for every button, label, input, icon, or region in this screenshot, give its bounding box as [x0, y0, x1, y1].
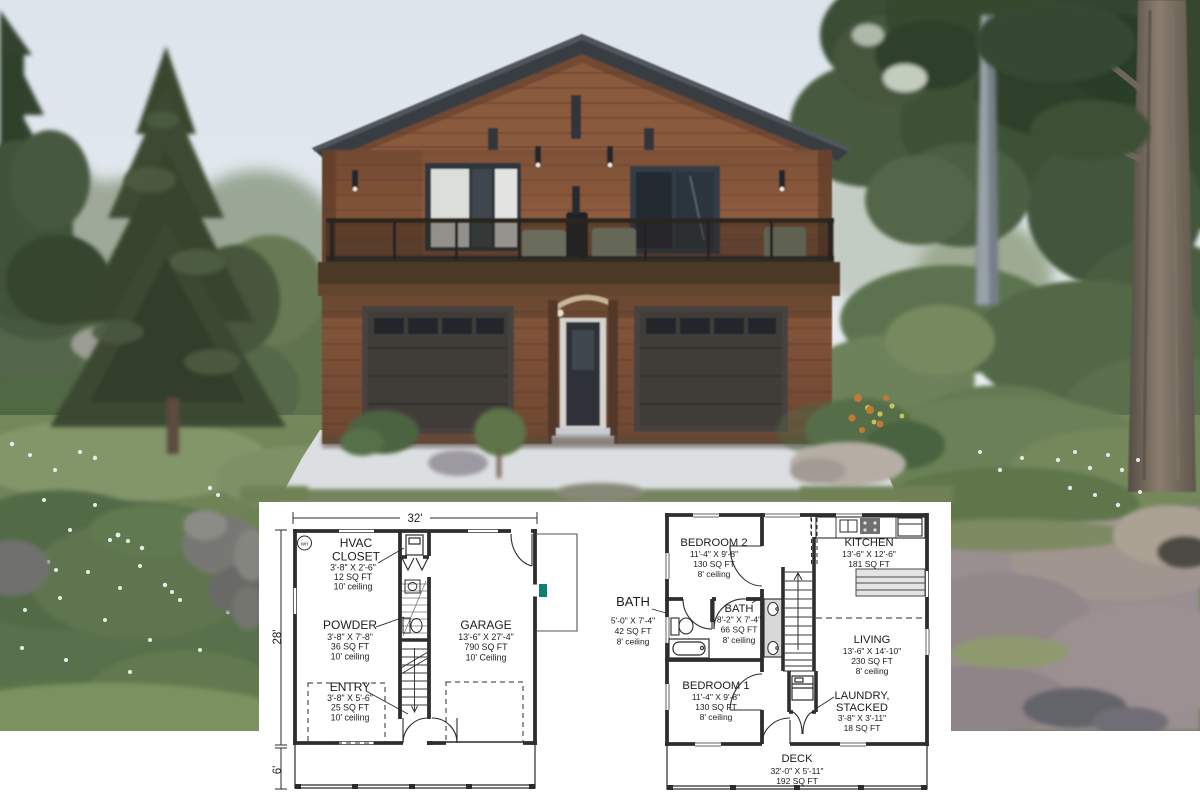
svg-text:KITCHEN: KITCHEN: [844, 537, 893, 549]
svg-text:790 SQ FT: 790 SQ FT: [464, 642, 508, 652]
svg-text:130 SQ FT: 130 SQ FT: [693, 559, 735, 569]
svg-text:11'-4" X 9'-8": 11'-4" X 9'-8": [690, 549, 738, 559]
svg-text:10' ceiling: 10' ceiling: [331, 652, 370, 662]
svg-text:8' ceiling: 8' ceiling: [723, 635, 756, 645]
svg-text:12 SQ FT: 12 SQ FT: [334, 572, 373, 582]
svg-text:13'-6" X 14'-10": 13'-6" X 14'-10": [843, 646, 901, 656]
svg-text:HVAC: HVAC: [340, 536, 373, 550]
svg-text:ENTRY: ENTRY: [330, 680, 370, 694]
svg-text:32': 32': [408, 513, 423, 525]
svg-text:11'-4" X 9'-8": 11'-4" X 9'-8": [692, 692, 740, 702]
svg-text:18 SQ FT: 18 SQ FT: [844, 723, 881, 733]
svg-text:10' Ceiling: 10' Ceiling: [466, 653, 507, 663]
svg-text:8' ceiling: 8' ceiling: [856, 666, 889, 676]
svg-text:28': 28': [272, 630, 284, 645]
svg-text:130 SQ FT: 130 SQ FT: [695, 702, 737, 712]
svg-text:8' ceiling: 8' ceiling: [700, 712, 733, 722]
svg-text:66 SQ FT: 66 SQ FT: [721, 625, 758, 635]
svg-text:8' ceiling: 8' ceiling: [617, 637, 650, 647]
svg-text:DECK: DECK: [781, 753, 813, 765]
svg-text:181 SQ FT: 181 SQ FT: [848, 559, 890, 569]
svg-text:WH: WH: [301, 542, 309, 547]
svg-text:3'-8" X 3'-11": 3'-8" X 3'-11": [838, 713, 886, 723]
svg-text:230 SQ FT: 230 SQ FT: [851, 656, 893, 666]
svg-text:GARAGE: GARAGE: [460, 618, 511, 632]
svg-text:10' ceiling: 10' ceiling: [334, 582, 373, 592]
svg-text:36 SQ FT: 36 SQ FT: [331, 642, 370, 652]
svg-text:10' ceiling: 10' ceiling: [331, 713, 370, 723]
svg-text:8'-2" X 7'-4": 8'-2" X 7'-4": [717, 615, 761, 625]
svg-text:BEDROOM 2: BEDROOM 2: [680, 537, 747, 549]
svg-text:5'-0" X 7'-4": 5'-0" X 7'-4": [611, 616, 655, 626]
svg-text:BATH: BATH: [724, 603, 753, 615]
svg-text:32'-0" X 5'-11": 32'-0" X 5'-11": [770, 766, 823, 776]
svg-text:3'-8" X 2'-6": 3'-8" X 2'-6": [330, 563, 376, 573]
svg-text:13'-6" X 12'-6": 13'-6" X 12'-6": [842, 549, 896, 559]
svg-text:BATH: BATH: [616, 594, 650, 609]
svg-text:6': 6': [272, 766, 284, 775]
svg-text:8' ceiling: 8' ceiling: [698, 569, 731, 579]
svg-text:LAUNDRY,: LAUNDRY,: [835, 690, 890, 702]
svg-text:CLOSET: CLOSET: [332, 550, 381, 564]
svg-text:LIVING: LIVING: [854, 634, 891, 646]
svg-text:3'-8" X 7'-8": 3'-8" X 7'-8": [327, 632, 373, 642]
svg-text:3'-8" X 5'-6": 3'-8" X 5'-6": [327, 693, 373, 703]
svg-text:13'-6" X 27'-4": 13'-6" X 27'-4": [458, 632, 514, 642]
svg-text:25 SQ FT: 25 SQ FT: [331, 703, 370, 713]
svg-text:42 SQ FT: 42 SQ FT: [615, 626, 652, 636]
svg-text:BEDROOM 1: BEDROOM 1: [682, 680, 749, 692]
svg-text:192 SQ FT: 192 SQ FT: [776, 776, 818, 786]
svg-text:POWDER: POWDER: [323, 618, 377, 632]
